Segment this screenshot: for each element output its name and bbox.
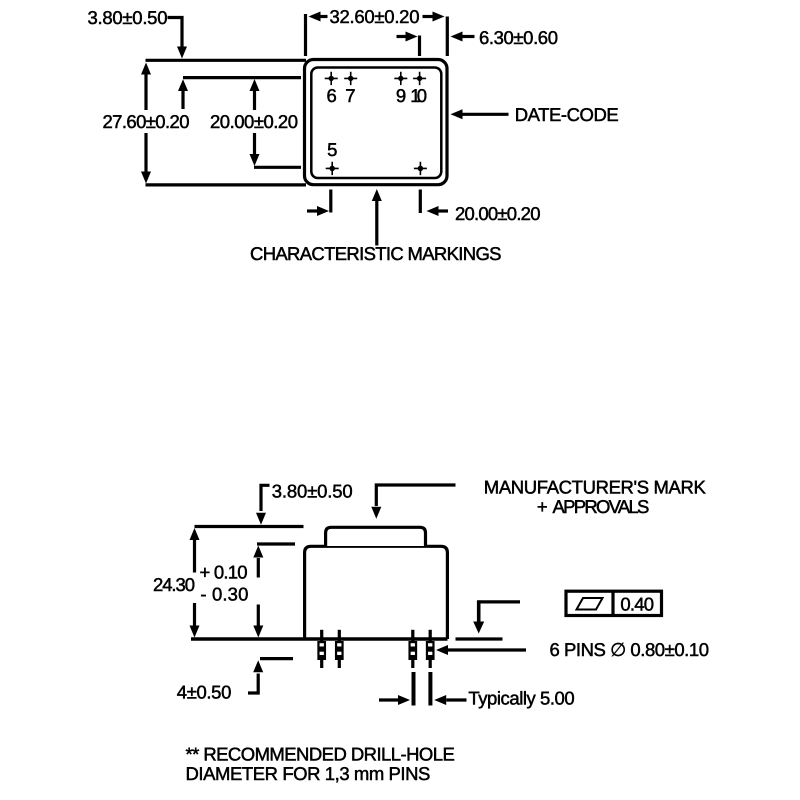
svg-text:DIAMETER FOR 1,3 mm PINS: DIAMETER FOR 1,3 mm PINS [186,763,431,784]
svg-text:3.80±0.50: 3.80±0.50 [272,481,353,502]
svg-text:DATE-CODE: DATE-CODE [515,104,619,125]
svg-text:0.40: 0.40 [620,593,654,614]
svg-text:10: 10 [410,85,427,106]
svg-text:APPROVALS: APPROVALS [553,496,650,517]
svg-text:** RECOMMENDED DRILL-HOLE: ** RECOMMENDED DRILL-HOLE [186,743,455,764]
svg-text:4±0.50: 4±0.50 [177,682,232,703]
svg-text:32.60±0.20: 32.60±0.20 [330,6,420,27]
svg-text:20.00±0.20: 20.00±0.20 [455,203,541,224]
svg-text:6: 6 [326,85,336,106]
svg-text:6 PINS ∅ 0.80±0.10: 6 PINS ∅ 0.80±0.10 [550,639,710,660]
svg-text:7: 7 [345,85,355,106]
svg-text:+: + [537,496,548,517]
svg-text:3.80±0.50: 3.80±0.50 [88,7,168,28]
svg-text:6.30±0.60: 6.30±0.60 [479,27,558,48]
svg-text:CHARACTERISTIC MARKINGS: CHARACTERISTIC MARKINGS [250,243,502,264]
svg-text:MANUFACTURER'S MARK: MANUFACTURER'S MARK [484,476,707,497]
svg-text:27.60±0.20: 27.60±0.20 [103,111,190,132]
svg-text:20.00±0.20: 20.00±0.20 [210,111,298,132]
svg-text:5: 5 [327,139,337,160]
svg-text:9: 9 [396,85,406,106]
svg-text:Typically 5.00: Typically 5.00 [468,687,574,708]
svg-text:+ 0.10: + 0.10 [200,562,248,583]
svg-text:24.30: 24.30 [153,574,195,595]
svg-text:- 0.30: - 0.30 [200,584,248,605]
